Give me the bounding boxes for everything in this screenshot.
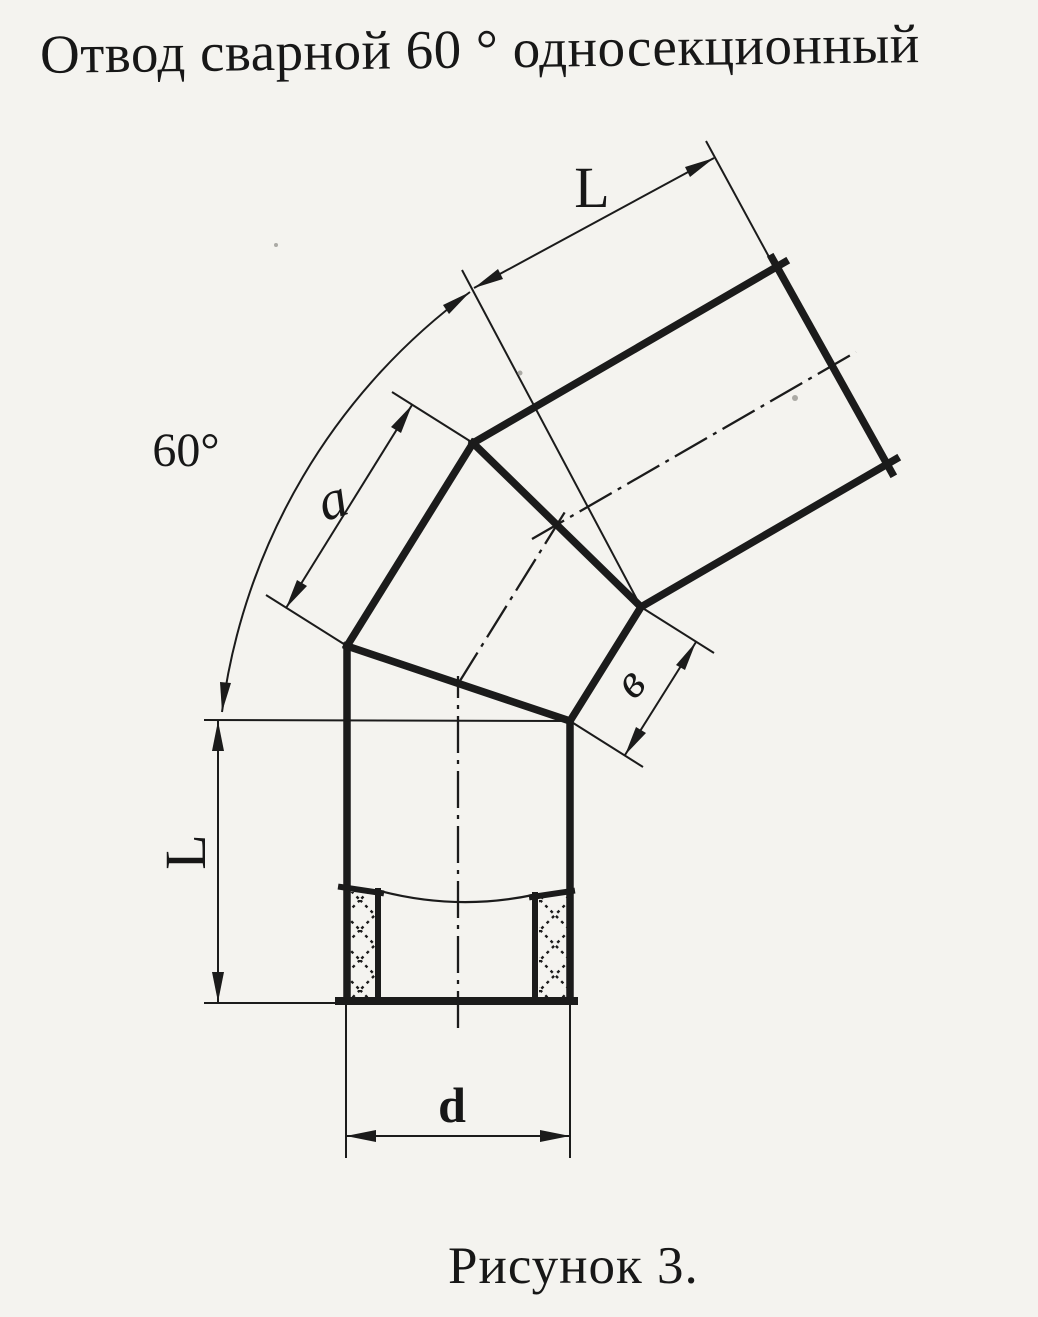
arrowhead-d-right: [540, 1130, 570, 1142]
ext-line-weld-perpendicular: [462, 270, 641, 607]
scanned-page: { "page": { "paper_color": "#f4f3ef", "i…: [0, 0, 1038, 1317]
scan-speck: [792, 395, 798, 401]
figure-caption: Рисунок 3.: [448, 1236, 699, 1296]
arrowhead-lower-L-top: [212, 721, 224, 751]
ext-line-v-upper: [641, 607, 714, 653]
arrowhead-upper-L-right: [685, 158, 714, 177]
left-wall-hatch: [350, 892, 376, 1000]
scan-speck: [518, 371, 523, 376]
middle-section-right-edge: [570, 607, 641, 721]
upper-pipe-bottom-edge: [641, 459, 896, 607]
label-width-v: в: [603, 657, 656, 708]
arrowhead-d-left: [346, 1130, 376, 1142]
upper-pipe-top-edge: [473, 262, 785, 443]
elbow-technical-drawing: L 60° a в L d: [0, 0, 1038, 1317]
right-wall-hatch: [539, 896, 567, 1000]
middle-section-centerline: [458, 507, 568, 684]
arrowhead-a-lower: [286, 580, 307, 608]
label-upper-length-L: L: [574, 155, 609, 220]
scan-speck: [274, 243, 278, 247]
label-diameter-d: d: [438, 1077, 466, 1133]
inserted-pipe-break-line: [380, 891, 533, 902]
arrowhead-v-upper: [676, 642, 696, 670]
arrowhead-arc-top: [443, 292, 470, 314]
ext-line-end-face: [706, 141, 775, 268]
label-lower-length-L: L: [153, 834, 218, 869]
arrowhead-v-lower: [625, 727, 646, 755]
ext-line-a-lower: [266, 595, 347, 646]
arrowhead-a-upper: [391, 405, 412, 433]
middle-section-left-edge: [347, 443, 473, 646]
ext-line-weld-low-point: [204, 720, 570, 721]
label-angle-60: 60°: [152, 424, 219, 477]
arrowhead-upper-L-left: [474, 269, 503, 288]
label-segment-a: a: [309, 466, 355, 534]
arrowhead-lower-L-bottom: [212, 972, 224, 1002]
